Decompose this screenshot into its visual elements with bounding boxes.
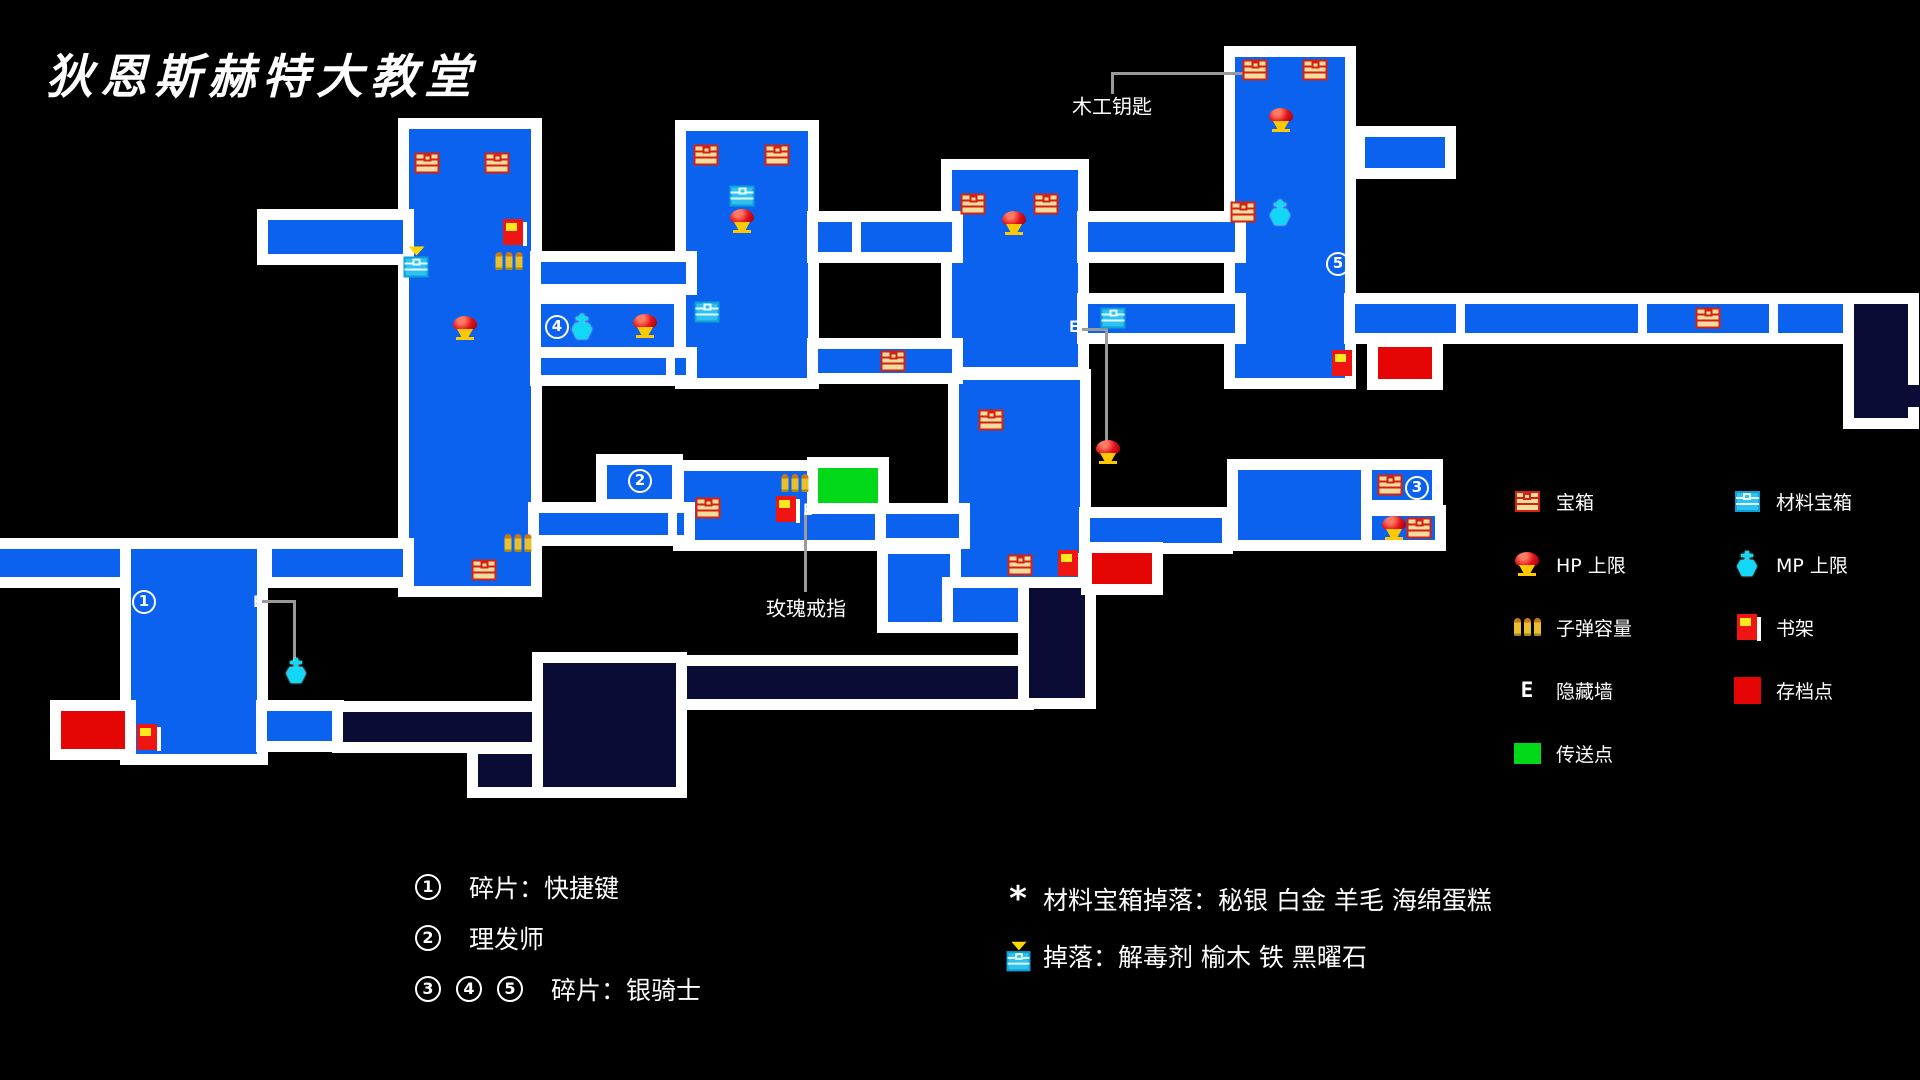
legend-label: 书架 [1776, 614, 1814, 641]
map-screen: EEE12345木工钥匙玫瑰戒指 狄恩斯赫特大教堂 宝箱HP 上限子弹容量E隐藏… [0, 0, 1920, 1080]
hp-up-icon [730, 209, 754, 233]
treasure-chest-icon [1008, 555, 1033, 576]
map-room [888, 554, 950, 622]
map-icon-book [503, 219, 523, 245]
map-icon-chest [415, 153, 440, 174]
map-icon-mp [1268, 200, 1292, 226]
marked-material-chest-icon [1006, 941, 1030, 970]
map-room [272, 549, 403, 577]
note-row-right-0: *材料宝箱掉落：秘银 白金 羊毛 海绵蛋糕 [1000, 878, 1492, 920]
circled-number-1: 1 [415, 874, 441, 900]
circled-number-5: 5 [1326, 252, 1350, 276]
map-icon-num: 1 [132, 590, 156, 614]
map-room [1378, 347, 1432, 379]
material-chest-icon [695, 302, 720, 323]
map-icon-chest [485, 153, 510, 174]
note-marker-matchest_marked [1000, 941, 1036, 972]
note-row-left-2: 345碎片：银骑士 [415, 968, 701, 1010]
map-icon-bullets [505, 534, 532, 552]
hidden-wall-icon: E [1521, 680, 1534, 701]
annotation-line [1111, 72, 1243, 75]
map-icon-num: 5 [1326, 252, 1350, 276]
map-icon-mp [284, 658, 308, 684]
legend-item-left-1: HP 上限 [1506, 541, 1632, 587]
bullet-capacity-icon [505, 534, 532, 552]
treasure-chest-icon [694, 145, 719, 166]
map-room [1090, 518, 1222, 543]
save-point-icon [1734, 677, 1761, 704]
map-icon-matchest [730, 186, 755, 207]
map-room [687, 666, 1023, 699]
mp-up-icon [570, 314, 594, 340]
map-icon-hp [453, 316, 477, 340]
corridor-divider [1638, 304, 1647, 333]
treasure-chest-icon [1407, 518, 1432, 539]
map-room [267, 711, 333, 741]
map-icon-chest [961, 194, 986, 215]
hidden-wall-icon: E [1069, 319, 1079, 335]
map-icon-chest [694, 145, 719, 166]
treasure-chest-icon [1303, 60, 1328, 81]
note-text: 理发师 [469, 920, 544, 956]
map-annotation: 木工钥匙 [1072, 91, 1152, 120]
notes-left: 1碎片：快捷键2理发师345碎片：银骑士 [415, 866, 701, 1010]
note-row-right-1: 掉落：解毒剂 榆木 铁 黑曜石 [1000, 935, 1492, 977]
marker-triangle-icon [1010, 941, 1025, 950]
map-icon-hp [1002, 211, 1026, 235]
treasure-chest-icon [1034, 194, 1059, 215]
map-icon-chest [1378, 475, 1403, 496]
map-room [818, 468, 878, 503]
hp-up-icon [453, 316, 477, 340]
corridor-divider [666, 358, 675, 375]
treasure-chest-icon [485, 153, 510, 174]
treasure-chest-icon [1243, 60, 1268, 81]
map-icon-bullets [496, 252, 523, 270]
hidden-wall-icon: E [803, 502, 813, 518]
map-icon-chest [1008, 555, 1033, 576]
legend-label: 子弹容量 [1556, 614, 1632, 641]
circled-number-4: 4 [456, 976, 482, 1002]
teleport-point-icon [1514, 743, 1541, 764]
legend-item-right-0: 材料宝箱 [1726, 478, 1852, 524]
map-icon-book [1332, 350, 1352, 376]
bullet-capacity-icon [496, 252, 523, 270]
circled-number-3: 3 [415, 976, 441, 1002]
bookshelf-icon [503, 219, 523, 245]
bookshelf-icon [1737, 614, 1757, 640]
mp-up-icon [284, 658, 308, 684]
map-icon-ewall: E [253, 594, 263, 610]
notes-right: *材料宝箱掉落：秘银 白金 羊毛 海绵蛋糕掉落：解毒剂 榆木 铁 黑曜石 [1000, 878, 1492, 977]
note-row-left-1: 2理发师 [415, 917, 701, 959]
circled-number-2: 2 [415, 925, 441, 951]
legend-item-left-3: E隐藏墙 [1506, 667, 1632, 713]
legend-item-left-0: 宝箱 [1506, 478, 1632, 524]
legend-label: MP 上限 [1776, 551, 1848, 578]
hp-up-icon [1269, 108, 1293, 132]
map-icon-chest [472, 560, 497, 581]
map-room [543, 663, 676, 787]
material-chest-icon [1735, 491, 1760, 512]
legend-label: 宝箱 [1556, 488, 1594, 515]
mp-up-icon [1735, 551, 1759, 577]
map-icon-chest [1243, 60, 1268, 81]
map-room [686, 131, 808, 378]
map-icon-hp [633, 314, 657, 338]
circled-number-1: 1 [132, 590, 156, 614]
note-row-left-0: 1碎片：快捷键 [415, 866, 701, 908]
legend-item-right-1: MP 上限 [1726, 541, 1852, 587]
map-icon-matchest_marked [404, 247, 429, 278]
map-icon-chest [1696, 308, 1721, 329]
legend-label: 材料宝箱 [1776, 488, 1852, 515]
note-text: 碎片：银骑士 [551, 971, 701, 1007]
legend-label: 传送点 [1556, 740, 1613, 767]
legend-item-right-2: 书架 [1726, 604, 1852, 650]
map-icon-num: 4 [545, 315, 569, 339]
map-icon-book [776, 496, 796, 522]
corridor-divider [852, 222, 861, 252]
bullet-capacity-icon [782, 474, 809, 492]
circled-number-5: 5 [497, 976, 523, 1002]
map-icon-chest [979, 410, 1004, 431]
hp-up-icon [633, 314, 657, 338]
hp-up-icon [1096, 440, 1120, 464]
map-room [541, 358, 686, 375]
map-icon-chest [1407, 518, 1432, 539]
map-icon-chest [1303, 60, 1328, 81]
note-text: 碎片：快捷键 [469, 869, 619, 905]
material-chest-icon [730, 186, 755, 207]
note-text: 掉落：解毒剂 榆木 铁 黑曜石 [1043, 938, 1367, 974]
map-icon-hp [1269, 108, 1293, 132]
circled-number-2: 2 [628, 469, 652, 493]
legend-label: HP 上限 [1556, 551, 1626, 578]
corridor-divider [1769, 304, 1778, 333]
treasure-chest-icon [1696, 308, 1721, 329]
hp-up-icon [1382, 516, 1406, 540]
map-room [1854, 304, 1908, 418]
circled-number-3: 3 [1405, 476, 1429, 500]
marked-material-chest-icon [404, 247, 429, 278]
map-icon-chest [1231, 202, 1256, 223]
material-chest-icon [1101, 308, 1126, 329]
map-icon-mp [570, 314, 594, 340]
legend-item-right-3: 存档点 [1726, 667, 1852, 713]
legend-item-left-4: 传送点 [1506, 730, 1632, 776]
map-room [818, 222, 952, 252]
map-room [886, 514, 959, 538]
map-icon-ewall: E [803, 502, 813, 518]
map-icon-matchest [1101, 308, 1126, 329]
map-room [343, 712, 540, 742]
legend-column-right: 材料宝箱MP 上限书架存档点 [1726, 478, 1852, 713]
circled-number-4: 4 [545, 315, 569, 339]
map-room [409, 129, 531, 586]
treasure-chest-icon [1515, 491, 1540, 512]
map-room [1365, 137, 1445, 168]
marker-triangle-icon [408, 247, 424, 256]
treasure-chest-icon [1378, 475, 1403, 496]
legend-column-left: 宝箱HP 上限子弹容量E隐藏墙传送点 [1506, 478, 1632, 776]
map-icon-matchest [695, 302, 720, 323]
corridor-divider [668, 513, 677, 535]
annotation-line [804, 512, 807, 592]
treasure-chest-icon [979, 410, 1004, 431]
treasure-chest-icon [765, 145, 790, 166]
map-room [1238, 470, 1363, 540]
map-icon-book [137, 724, 157, 750]
map-room [0, 549, 120, 577]
treasure-chest-icon [961, 194, 986, 215]
map-icon-num: 2 [628, 469, 652, 493]
bookshelf-icon [137, 724, 157, 750]
map-room [1092, 553, 1152, 584]
note-marker-asterisk: * [1000, 879, 1036, 919]
map-annotation: 玫瑰戒指 [766, 593, 846, 622]
map-icon-chest [881, 351, 906, 372]
map-room [1088, 222, 1235, 252]
hp-up-icon [1515, 552, 1539, 576]
legend-label: 隐藏墙 [1556, 677, 1613, 704]
annotation-line [262, 600, 296, 603]
legend-item-left-2: 子弹容量 [1506, 604, 1632, 650]
bullet-capacity-icon [1514, 618, 1541, 636]
map-icon-book [1058, 550, 1078, 576]
map-icon-bullets [782, 474, 809, 492]
annotation-line [293, 600, 296, 662]
corridor-divider [1456, 304, 1465, 333]
map-icon-chest [1034, 194, 1059, 215]
mp-up-icon [1268, 200, 1292, 226]
map-room [1908, 385, 1920, 407]
hp-up-icon [1002, 211, 1026, 235]
map-room [268, 220, 403, 254]
map-room [61, 711, 125, 749]
map-room [953, 588, 1023, 622]
hidden-wall-icon: E [253, 594, 263, 610]
page-title: 狄恩斯赫特大教堂 [46, 38, 478, 107]
map-icon-chest [765, 145, 790, 166]
treasure-chest-icon [415, 153, 440, 174]
treasure-chest-icon [472, 560, 497, 581]
bookshelf-icon [776, 496, 796, 522]
legend-label: 存档点 [1776, 677, 1833, 704]
bookshelf-icon [1058, 550, 1078, 576]
map-icon-hp [1096, 440, 1120, 464]
bookshelf-icon [1332, 350, 1352, 376]
map-icon-ewall: E [1069, 319, 1079, 335]
note-text: 材料宝箱掉落：秘银 白金 羊毛 海绵蛋糕 [1043, 881, 1492, 917]
map-room [539, 513, 684, 535]
map-room [478, 754, 538, 787]
map-icon-chest [696, 498, 721, 519]
map-icon-hp [1382, 516, 1406, 540]
treasure-chest-icon [1231, 202, 1256, 223]
map-room [1029, 588, 1085, 698]
treasure-chest-icon [696, 498, 721, 519]
map-room [541, 262, 686, 284]
treasure-chest-icon [881, 351, 906, 372]
map-icon-num: 3 [1405, 476, 1429, 500]
annotation-line [1105, 328, 1108, 442]
map-icon-hp [730, 209, 754, 233]
